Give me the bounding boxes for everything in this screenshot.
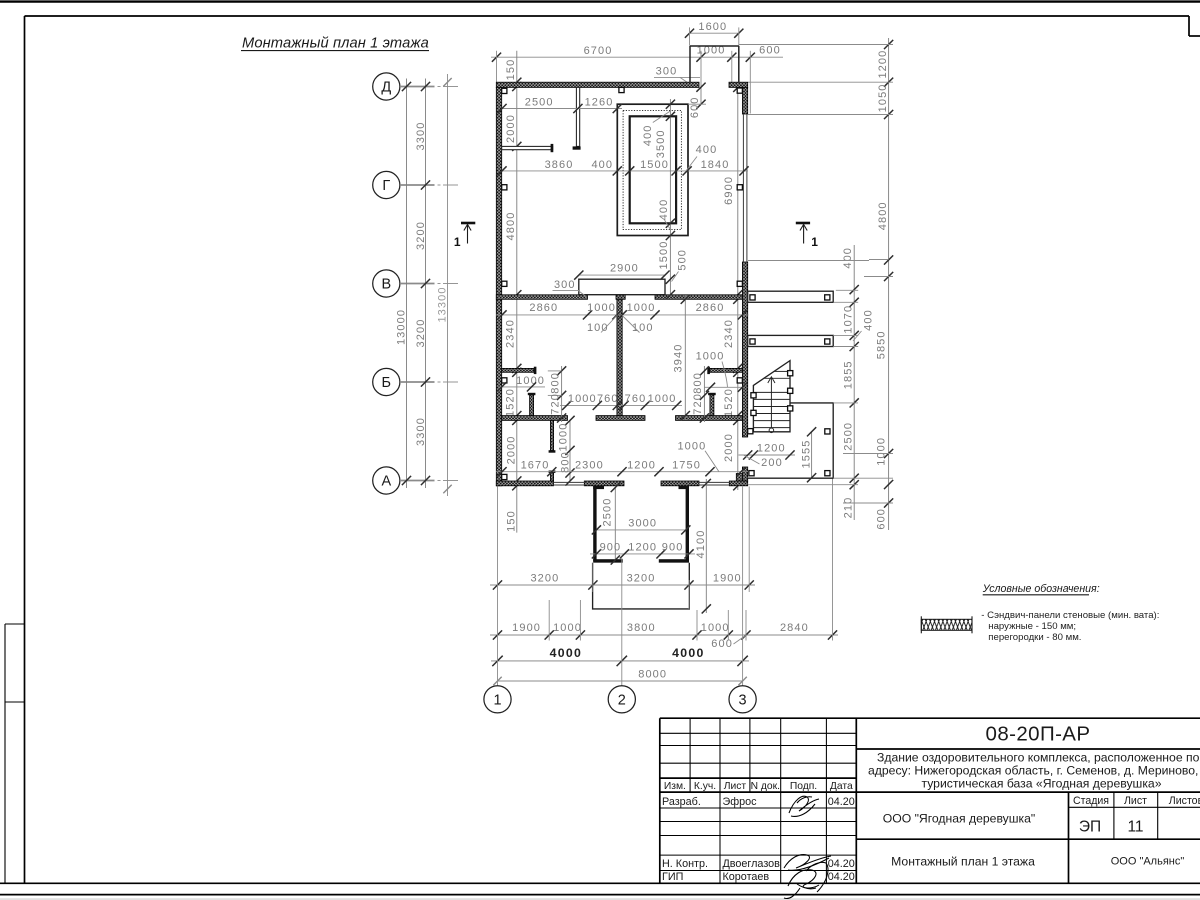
svg-text:4100: 4100 (695, 530, 707, 559)
svg-text:Дата: Дата (830, 781, 853, 792)
svg-text:Разраб.: Разраб. (662, 796, 701, 808)
svg-text:1000: 1000 (516, 375, 545, 387)
svg-text:Н. Контр.: Н. Контр. (662, 858, 708, 870)
svg-text:1000: 1000 (677, 440, 706, 452)
svg-text:200: 200 (761, 457, 783, 469)
svg-text:1000: 1000 (696, 351, 725, 363)
svg-text:300: 300 (554, 279, 576, 291)
svg-text:Монтажный план 1 этажа: Монтажный план 1 этажа (242, 36, 429, 52)
svg-text:3940: 3940 (673, 344, 685, 373)
svg-text:1200: 1200 (627, 459, 656, 471)
svg-text:6700: 6700 (584, 45, 613, 57)
svg-text:900: 900 (662, 542, 684, 554)
svg-text:08-20П-АР: 08-20П-АР (986, 723, 1091, 746)
svg-text:4000: 4000 (550, 646, 583, 660)
svg-text:ООО "Альянс": ООО "Альянс" (1111, 855, 1185, 867)
svg-text:600: 600 (759, 45, 781, 57)
svg-text:1855: 1855 (843, 360, 855, 389)
svg-text:720: 720 (550, 393, 562, 415)
svg-text:1520: 1520 (505, 388, 517, 417)
svg-text:1070: 1070 (843, 305, 855, 334)
svg-text:400: 400 (658, 199, 670, 221)
svg-text:4000: 4000 (672, 646, 705, 660)
svg-text:2900: 2900 (610, 262, 639, 274)
svg-text:адресу: Нижегородская область,: адресу: Нижегородская область, г. Семено… (868, 764, 1198, 778)
svg-text:2860: 2860 (529, 302, 558, 314)
svg-text:2500: 2500 (525, 97, 554, 109)
svg-text:1500: 1500 (658, 241, 670, 270)
svg-text:1000: 1000 (876, 437, 888, 466)
svg-text:300: 300 (656, 66, 678, 78)
svg-text:1750: 1750 (672, 459, 701, 471)
svg-text:13300: 13300 (437, 286, 449, 322)
svg-text:3: 3 (739, 692, 747, 708)
svg-text:3200: 3200 (627, 573, 656, 585)
svg-text:2500: 2500 (602, 498, 614, 527)
svg-text:5850: 5850 (876, 330, 888, 359)
svg-text:Двоеглазов: Двоеглазов (723, 858, 781, 870)
svg-text:Коротаев: Коротаев (723, 871, 770, 883)
svg-text:1260: 1260 (585, 97, 614, 109)
svg-text:Стадия: Стадия (1073, 795, 1109, 807)
svg-text:800: 800 (559, 451, 571, 473)
svg-text:1: 1 (811, 235, 818, 249)
svg-text:1200: 1200 (877, 50, 889, 79)
svg-text:Г: Г (382, 178, 390, 194)
svg-text:400: 400 (696, 144, 718, 156)
svg-text:Лист: Лист (1124, 795, 1147, 807)
svg-text:ГИП: ГИП (662, 871, 683, 883)
svg-text:наружные - 150 мм;: наружные - 150 мм; (988, 621, 1076, 632)
svg-text:Листов: Листов (1169, 795, 1200, 807)
svg-text:13000: 13000 (396, 309, 408, 345)
svg-text:600: 600 (711, 638, 733, 650)
svg-text:150: 150 (506, 510, 518, 532)
svg-text:1000: 1000 (587, 302, 616, 314)
svg-text:Б: Б (382, 375, 392, 391)
svg-text:1000: 1000 (558, 423, 570, 452)
svg-text:04.20: 04.20 (828, 796, 855, 808)
svg-text:1900: 1900 (713, 573, 742, 585)
svg-text:6900: 6900 (723, 176, 735, 205)
svg-text:1555: 1555 (801, 440, 813, 469)
svg-text:2000: 2000 (505, 114, 517, 143)
svg-text:1000: 1000 (648, 393, 677, 405)
svg-text:ООО "Ягодная деревушка": ООО "Ягодная деревушка" (883, 811, 1035, 825)
svg-text:1900: 1900 (512, 622, 541, 634)
svg-text:600: 600 (689, 96, 701, 118)
svg-text:1000: 1000 (627, 302, 656, 314)
svg-text:500: 500 (677, 249, 689, 271)
svg-text:2840: 2840 (780, 622, 809, 634)
svg-text:400: 400 (842, 247, 854, 269)
svg-text:1670: 1670 (521, 459, 550, 471)
svg-text:N док.: N док. (751, 781, 780, 792)
svg-text:Лист: Лист (724, 781, 747, 792)
svg-text:1840: 1840 (701, 159, 730, 171)
svg-text:1000: 1000 (568, 393, 597, 405)
svg-text:4800: 4800 (505, 212, 517, 241)
svg-text:3800: 3800 (627, 622, 656, 634)
svg-text:Д: Д (381, 80, 391, 96)
svg-text:2340: 2340 (723, 319, 735, 348)
svg-text:760: 760 (597, 393, 619, 405)
svg-text:1520: 1520 (723, 388, 735, 417)
svg-text:760: 760 (625, 393, 647, 405)
svg-text:11: 11 (1127, 819, 1143, 836)
svg-text:600: 600 (876, 508, 888, 530)
svg-text:1050: 1050 (877, 83, 889, 112)
svg-text:1: 1 (454, 235, 461, 249)
svg-text:3300: 3300 (415, 417, 427, 446)
svg-text:3200: 3200 (415, 319, 427, 348)
svg-text:900: 900 (600, 542, 622, 554)
svg-text:3000: 3000 (628, 518, 657, 530)
svg-text:Изм.: Изм. (664, 781, 686, 792)
svg-text:150: 150 (505, 59, 517, 81)
svg-text:К.уч.: К.уч. (694, 781, 716, 792)
svg-text:8000: 8000 (638, 668, 667, 680)
svg-text:2000: 2000 (723, 433, 735, 462)
svg-text:1000: 1000 (701, 622, 730, 634)
svg-text:2000: 2000 (506, 435, 518, 464)
svg-text:3500: 3500 (655, 129, 667, 158)
svg-text:1: 1 (493, 692, 501, 708)
svg-text:400: 400 (642, 124, 654, 146)
svg-text:04.20: 04.20 (828, 871, 855, 883)
svg-text:Подп.: Подп. (790, 781, 817, 792)
svg-text:ЭП: ЭП (1079, 819, 1101, 836)
svg-text:2860: 2860 (696, 302, 725, 314)
svg-text:400: 400 (591, 159, 613, 171)
svg-text:Здание оздоровительного компле: Здание оздоровительного комплекса, распо… (877, 750, 1200, 764)
svg-text:04.20: 04.20 (828, 858, 855, 870)
svg-text:3200: 3200 (530, 573, 559, 585)
svg-text:3300: 3300 (415, 122, 427, 151)
svg-text:перегородки - 80 мм.: перегородки - 80 мм. (988, 632, 1081, 643)
svg-text:4800: 4800 (877, 201, 889, 230)
svg-text:3200: 3200 (415, 221, 427, 250)
svg-text:3860: 3860 (545, 159, 574, 171)
svg-text:1600: 1600 (698, 21, 727, 33)
svg-text:Условные обозначения:: Условные обозначения: (982, 583, 1100, 595)
svg-text:- Сэндвич-панели стеновые (мин: - Сэндвич-панели стеновые (мин. вата): (981, 610, 1159, 621)
svg-text:Эфрос: Эфрос (723, 796, 758, 808)
svg-text:2340: 2340 (505, 319, 517, 348)
svg-text:туристическая база «Ягодная де: туристическая база «Ягодная деревушка» (922, 777, 1162, 791)
svg-text:1000: 1000 (553, 622, 582, 634)
svg-text:Монтажный план 1 этажа: Монтажный план 1 этажа (891, 855, 1035, 869)
svg-text:1500: 1500 (640, 159, 669, 171)
svg-text:210: 210 (843, 497, 855, 519)
svg-text:А: А (381, 474, 391, 490)
svg-text:2: 2 (618, 692, 626, 708)
svg-text:2500: 2500 (843, 422, 855, 451)
svg-text:800: 800 (550, 372, 562, 394)
svg-text:800: 800 (692, 372, 704, 394)
svg-text:1200: 1200 (757, 443, 786, 455)
svg-text:720: 720 (692, 393, 704, 415)
svg-text:1200: 1200 (628, 542, 657, 554)
svg-text:2300: 2300 (575, 459, 604, 471)
svg-text:400: 400 (862, 309, 874, 331)
svg-text:В: В (381, 277, 391, 293)
